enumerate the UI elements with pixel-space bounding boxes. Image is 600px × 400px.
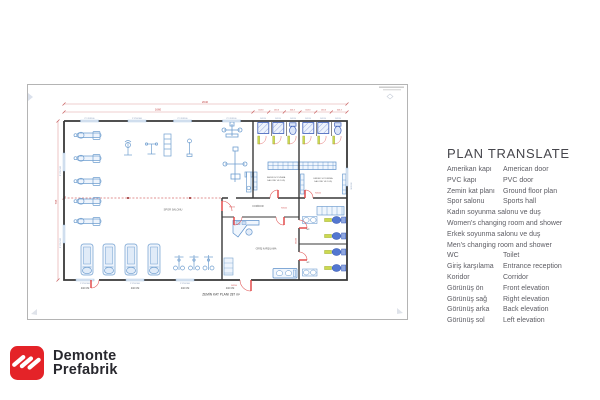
toilet [332,233,346,240]
dim-total: 2640 [202,100,209,104]
translate-row: Görünüş arkaBack elevation [447,306,597,317]
dim-stall: 163.3 [274,109,280,111]
brand-icon [10,346,44,380]
svg-text:P 170X100: P 170X100 [60,165,62,176]
toilet [332,217,346,224]
label-men: ERKEK SOYUNMA [313,177,333,180]
svg-text:SALONU VE DUŞ: SALONU VE DUŞ [314,180,332,183]
plan-title: ZEMİN KAT PLANI 287 m² [202,292,240,297]
brand-logo: Demonte Prefabrik [10,346,118,380]
svg-text:90X200: 90X200 [229,207,235,209]
svg-text:P 170X100: P 170X100 [178,118,189,120]
treadmill [103,244,115,275]
label-corridor: KORİDOR [252,205,263,208]
toilet [332,265,346,272]
dim-stall: 163.3 [290,109,296,111]
translate-row: WCToilet [447,252,597,263]
svg-text:90X200: 90X200 [281,208,287,210]
translate-row: Görünüş solLeft elevation [447,317,597,328]
svg-text:P 170X100: P 170X100 [180,283,191,285]
treadmill [81,244,93,275]
translate-row: Erkek soyunma salonu ve duş [447,231,597,242]
dim-left: 795 [54,199,58,204]
translate-row: Spor salonuSports hall [447,198,597,209]
desk-chair [246,229,252,235]
svg-text:440 CM: 440 CM [181,287,189,290]
svg-text:90X190: 90X190 [335,118,341,120]
treadmill [148,244,160,275]
svg-text:440 CM: 440 CM [226,287,234,290]
svg-text:90X190: 90X190 [290,118,296,120]
label-reception: GİRİŞ KARŞILAMA [256,248,277,251]
svg-text:440 CM: 440 CM [81,287,89,290]
svg-text:P 170X100: P 170X100 [130,283,141,285]
locker-bench [268,162,336,170]
svg-text:90X200: 90X200 [296,238,298,244]
translate-row: Zemin kat planıGround floor plan [447,188,597,199]
dim-gym: 1660 [155,108,162,112]
dim-stall: 163.3 [337,109,343,111]
dim-stall: 163.3 [305,109,311,111]
translate-row: PVC kapıPVC door [447,177,597,188]
svg-text:90X200: 90X200 [315,193,321,195]
svg-text:90X190: 90X190 [260,118,266,120]
svg-text:P 170X100: P 170X100 [85,118,96,120]
svg-text:90X190: 90X190 [320,118,326,120]
label-gym: SPOR SALONU [164,208,183,212]
svg-text:SALONU VE DUŞ: SALONU VE DUŞ [267,179,285,182]
translate-row: Men's changing room and shower [447,242,597,253]
dim-stall: 163.3 [321,109,327,111]
translate-list: Amerikan kapıAmerican door PVC kapıPVC d… [447,166,597,328]
translate-panel: PLAN TRANSLATE Amerikan kapıAmerican doo… [447,146,597,328]
panel-heading: PLAN TRANSLATE [447,146,597,161]
svg-text:P 170X100: P 170X100 [80,283,91,285]
treadmill [125,244,137,275]
svg-text:90X200: 90X200 [231,285,237,287]
translate-row: Giriş karşılamaEntrance reception [447,263,597,274]
waiting-bench [273,269,297,279]
svg-text:P 170X100: P 170X100 [132,118,143,120]
svg-text:90X190: 90X190 [351,182,353,190]
svg-text:90X190: 90X190 [275,118,281,120]
translate-row: Kadın soyunma salonu ve duş [447,209,597,220]
brand-name: Demonte Prefabrik [53,349,118,378]
translate-row: Women's changing room and shower [447,220,597,231]
toilet [332,249,346,256]
translate-row: Amerikan kapıAmerican door [447,166,597,177]
svg-text:440 CM: 440 CM [131,287,139,290]
svg-text:90X190: 90X190 [305,118,311,120]
shoe-rack [224,258,233,275]
translate-row: Görünüş sağRight elevation [447,296,597,307]
translate-row: Görünüş önFront elevation [447,285,597,296]
dim-stall: 163.3 [258,109,264,111]
floor-plan-drawing: 2640 1660 163.3 163.3 163.3 163.3 163.3 … [27,84,408,320]
svg-text:P 170X100: P 170X100 [227,118,238,120]
translate-row: KoridorCorridor [447,274,597,285]
wc-counter [317,207,344,216]
label-women: KADIN SOYUNMA [267,176,286,179]
svg-text:P 170X100: P 170X100 [60,237,62,248]
